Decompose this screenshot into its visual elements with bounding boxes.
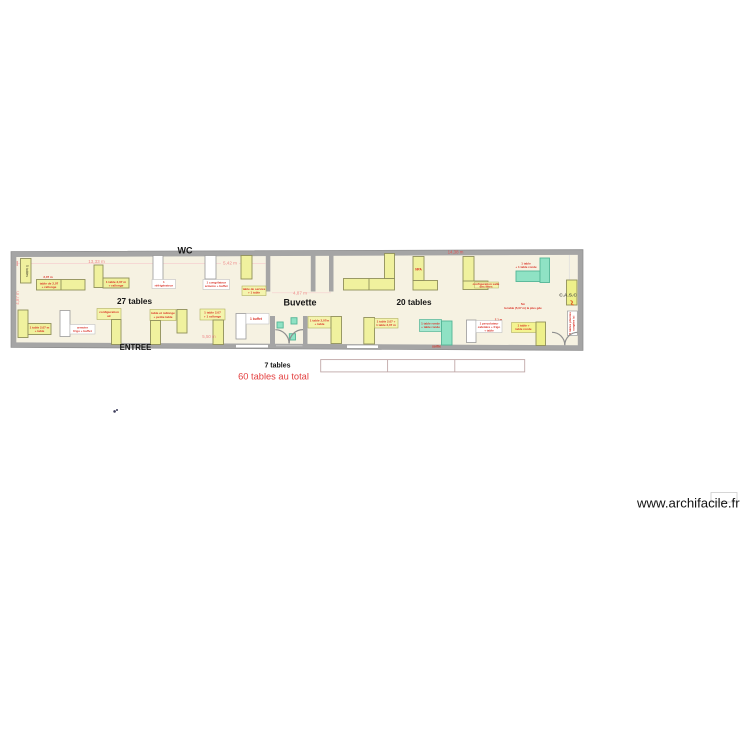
svg-text:5 tables: 5 tables [25,265,29,277]
svg-text:+ table ronde: + table ronde [421,325,440,329]
svg-text:1 buffet: 1 buffet [250,317,263,321]
svg-text:armoire + buffet: armoire + buffet [205,284,228,288]
svg-text:sortie: sortie [432,345,441,349]
svg-text:27 tables: 27 tables [117,297,152,306]
svg-text:des fêtes: des fêtes [479,285,492,289]
svg-text:NPA: NPA [415,268,422,272]
svg-text:réfrigérateur: réfrigérateur [155,284,174,288]
svg-text:60 tables au total: 60 tables au total [238,372,309,382]
svg-text:+ table: + table [484,328,494,332]
svg-text:rangées ici: rangées ici [572,316,576,331]
svg-text:2,07 m: 2,07 m [43,275,53,279]
svg-text:Buvette: Buvette [283,298,316,308]
svg-text:13,33 m: 13,33 m [88,259,105,264]
svg-text:+ 1 rallonge: + 1 rallonge [204,314,222,318]
svg-text:table ronde: table ronde [515,327,532,331]
svg-text:1 table 2,07 m: 1 table 2,07 m [376,323,396,327]
svg-text:+ table: + table [35,329,45,333]
svg-text:4,87 m: 4,87 m [293,291,307,296]
svg-text:la table (5,07 m) la plus gde: la table (5,07 m) la plus gde [504,306,542,310]
svg-text:+ table: + table [315,322,325,326]
svg-text:ENTREE: ENTREE [120,343,152,352]
svg-text:+ 1 table ronde: + 1 table ronde [515,265,537,269]
svg-text:C.A.S.C: C.A.S.C [559,292,577,298]
svg-text:20 tables: 20 tables [396,298,431,307]
svg-text:www.archifacile.fr: www.archifacile.fr [636,496,740,511]
svg-text:14,38 m: 14,38 m [448,250,464,255]
svg-text:5,42 m: 5,42 m [223,261,237,266]
svg-text:+ rallonge: + rallonge [109,283,124,287]
svg-text:4,87 m: 4,87 m [15,291,20,305]
svg-text:+ petite table: + petite table [154,315,173,319]
svg-text:+ rallonge: + rallonge [42,285,57,289]
svg-text:5,50 m: 5,50 m [202,334,216,339]
svg-text:frigo + buffet: frigo + buffet [73,329,91,333]
svg-text:WC: WC [178,246,193,256]
svg-text:7 tables: 7 tables [264,363,290,370]
svg-text:+ 1 table: + 1 table [248,291,260,295]
